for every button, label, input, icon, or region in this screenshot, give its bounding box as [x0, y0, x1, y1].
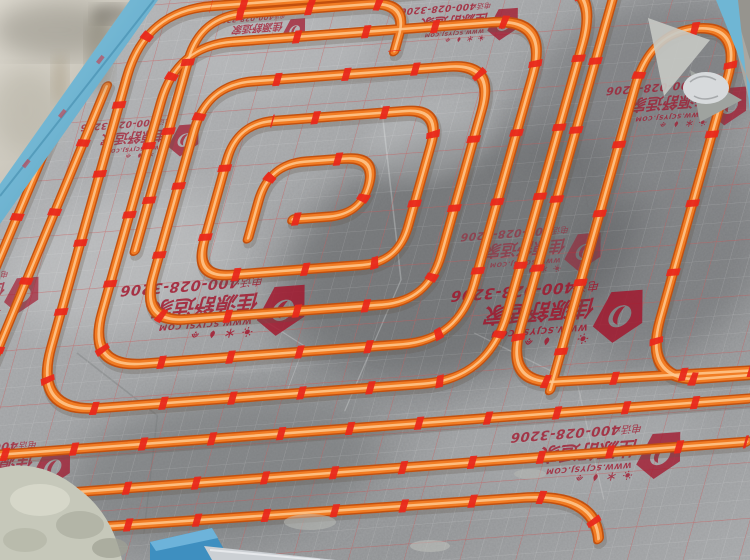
underfloor-heating-photo: WWW.SCJYSJ.COM 佳源舒适家 电话: 400-028-3206	[0, 0, 750, 560]
scene-canvas: WWW.SCJYSJ.COM 佳源舒适家 电话: 400-028-3206	[0, 0, 750, 560]
floor-plane	[0, 0, 750, 560]
